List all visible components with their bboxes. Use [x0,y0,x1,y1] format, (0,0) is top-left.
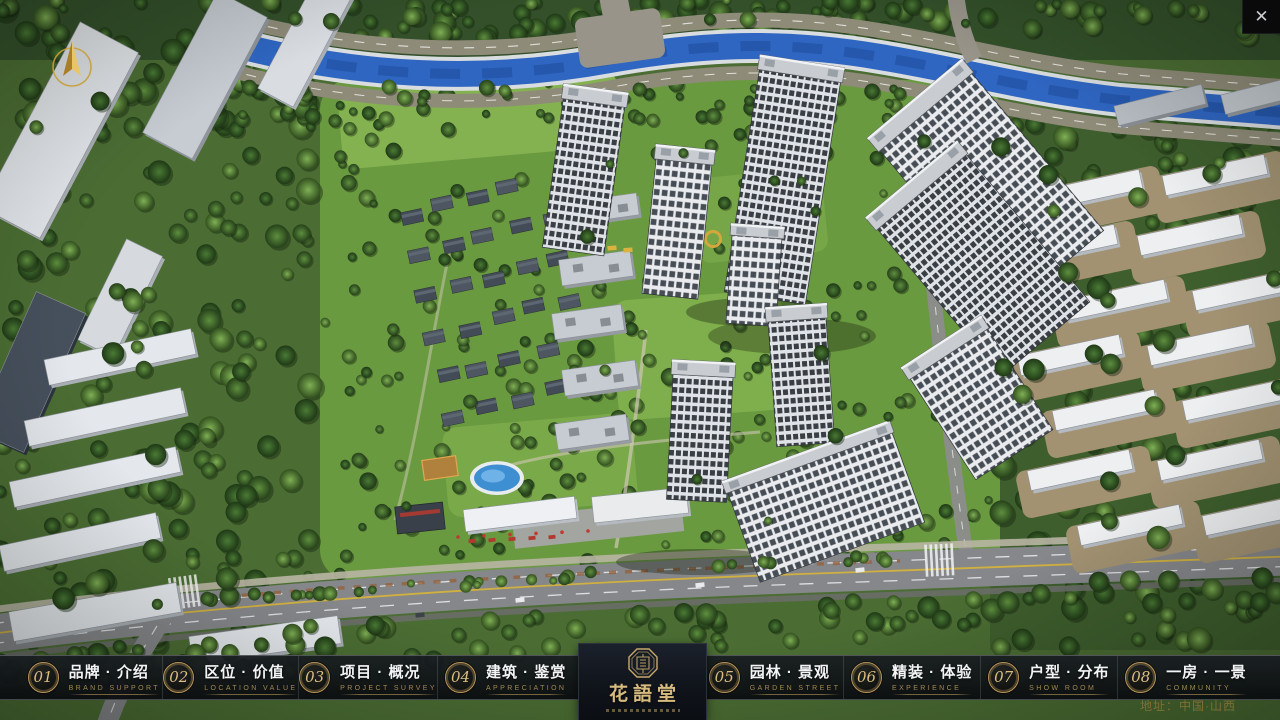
nav-badge: 04 [445,662,476,693]
nav-number: 06 [857,668,876,686]
seal-emblem-icon [628,648,658,678]
nav-label-cn: 项目 · 概况 [340,661,420,682]
nav-number: 02 [169,668,188,686]
nav-label-cn: 户型 · 分布 [1029,661,1109,682]
nav-item-community[interactable]: 08 一房 · 一景 COMMUNITY [1117,656,1254,699]
nav-group-left: 01 品牌 · 介绍 BRAND SUPPORT 02 区位 · 价值 LOCA… [0,656,574,699]
nav-label-en: PROJECT SURVEY [340,685,437,692]
nav-label-cn: 建筑 · 鉴赏 [486,661,566,682]
nav-number: 01 [34,668,53,686]
nav-badge: 07 [988,662,1019,693]
nav-label-en: BRAND SUPPORT [69,685,160,692]
nav-label-en: LOCATION VALUE [204,685,297,692]
nav-item-interior[interactable]: 06 精装 · 体验 EXPERIENCE [843,656,980,699]
nav-badge: 06 [851,662,882,693]
nav-number: 03 [305,668,324,686]
nav-underline [69,694,160,695]
nav-item-project[interactable]: 03 项目 · 概况 PROJECT SURVEY [298,656,437,699]
nav-item-architecture[interactable]: 04 建筑 · 鉴赏 APPRECIATION [437,656,574,699]
compass-icon [42,34,102,98]
nav-label-cn: 品牌 · 介绍 [69,661,149,682]
nav-badge: 02 [163,662,194,693]
nav-label-en: APPRECIATION [486,685,566,692]
nav-label-en: EXPERIENCE [892,685,961,692]
address-text: 地址：中国·山西 [1140,697,1236,714]
nav-underline [340,694,437,695]
nav-label-cn: 一房 · 一景 [1166,661,1246,682]
aerial-render [0,0,1280,720]
nav-number: 08 [1131,668,1150,686]
logo-tagline-placeholder [606,709,680,712]
nav-item-location[interactable]: 02 区位 · 价值 LOCATION VALUE [162,656,299,699]
nav-badge: 03 [299,662,330,693]
nav-underline [486,694,566,695]
nav-underline [1166,694,1246,695]
nav-underline [892,694,972,695]
nav-label-cn: 精装 · 体验 [892,661,972,682]
nav-underline [750,694,841,695]
nav-item-garden[interactable]: 05 园林 · 景观 GARDEN STREET [707,656,843,699]
nav-group-right: 05 园林 · 景观 GARDEN STREET 06 精装 · 体验 EXPE… [707,656,1280,699]
logo-title: 花語堂 [604,679,681,706]
nav-label-en: SHOW ROOM [1029,685,1096,692]
project-logo[interactable]: 花語堂 [579,644,706,720]
nav-badge: 01 [28,662,59,693]
nav-label-en: COMMUNITY [1166,685,1231,692]
nav-badge: 08 [1125,662,1156,693]
masterplan-viewport: ✕ 01 品牌 · 介绍 BRAND SUPPORT 02 区位 · 价值 LO… [0,0,1280,720]
nav-badge: 05 [709,662,740,693]
nav-underline [204,694,297,695]
nav-number: 07 [994,668,1013,686]
nav-item-floorplan[interactable]: 07 户型 · 分布 SHOW ROOM [980,656,1117,699]
vignette [0,0,1280,720]
nav-label-cn: 区位 · 价值 [204,661,284,682]
nav-underline [1029,694,1109,695]
close-button[interactable]: ✕ [1242,0,1280,34]
nav-label-en: GARDEN STREET [750,685,841,692]
nav-label-cn: 园林 · 景观 [750,661,830,682]
nav-number: 04 [451,668,470,686]
nav-number: 05 [715,668,734,686]
nav-item-brand[interactable]: 01 品牌 · 介绍 BRAND SUPPORT [26,656,162,699]
